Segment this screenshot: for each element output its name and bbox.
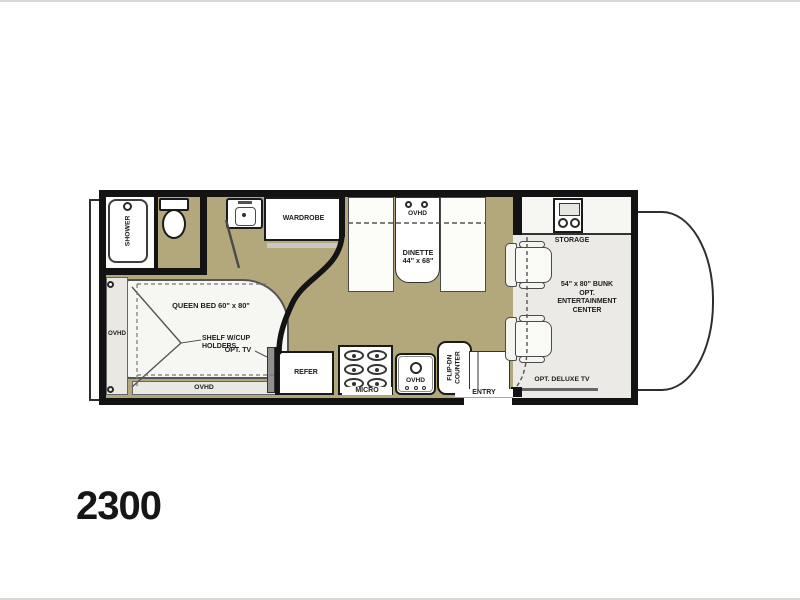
bath-wall-bottom	[106, 268, 207, 275]
bed-ovhd-left-label: OVHD	[104, 330, 130, 337]
coach-body: SHOWER WARDROBE OVHD QUEEN BED 60" x 80"	[99, 190, 638, 405]
queen-bed-label: QUEEN BED 60" x 80"	[136, 302, 286, 311]
storage-wall	[513, 197, 522, 235]
page-top-border	[0, 0, 800, 2]
opt-tv-leader-line	[255, 351, 267, 357]
opt-deluxe-tv-label: OPT. DELUXE TV	[526, 376, 598, 384]
bunk-label-line4: CENTER	[544, 307, 630, 316]
bed-ovhd-bottom-label: OVHD	[132, 384, 276, 392]
dinette-label-line2: 44" x 68"	[383, 257, 453, 265]
bunk-label-line1: 54" x 80" BUNK	[544, 281, 630, 290]
model-number: 2300	[76, 486, 161, 526]
bunk-label: 54" x 80" BUNK OPT. ENTERTAINMENT CENTER	[544, 281, 630, 315]
floor-plan-page: SHOWER WARDROBE OVHD QUEEN BED 60" x 80"	[0, 0, 800, 600]
opt-tv-label: OPT. TV	[220, 347, 256, 355]
bunk-dashed-outline	[509, 237, 527, 394]
bath-door-line	[226, 220, 239, 268]
micro-label: MICRO	[342, 387, 392, 395]
shelf-leader-line	[181, 340, 201, 343]
entry-door-opening	[464, 398, 512, 405]
dinette-label: DINETTE 44" x 68"	[383, 249, 453, 266]
bunk-label-line3: ENTERTAINMENT	[544, 298, 630, 307]
storage-label: STORAGE	[513, 237, 631, 245]
curved-wall	[279, 236, 342, 352]
bath-wall-right	[200, 197, 207, 273]
shelf-label-line1: SHELF W/CUP	[202, 335, 272, 343]
bunk-label-line2: OPT.	[544, 290, 630, 299]
entry-label: ENTRY	[455, 389, 513, 397]
wardrobe-wall	[339, 197, 345, 237]
dinette-ovhd-label: OVHD	[395, 210, 440, 218]
cab-hood-outline	[634, 211, 714, 391]
